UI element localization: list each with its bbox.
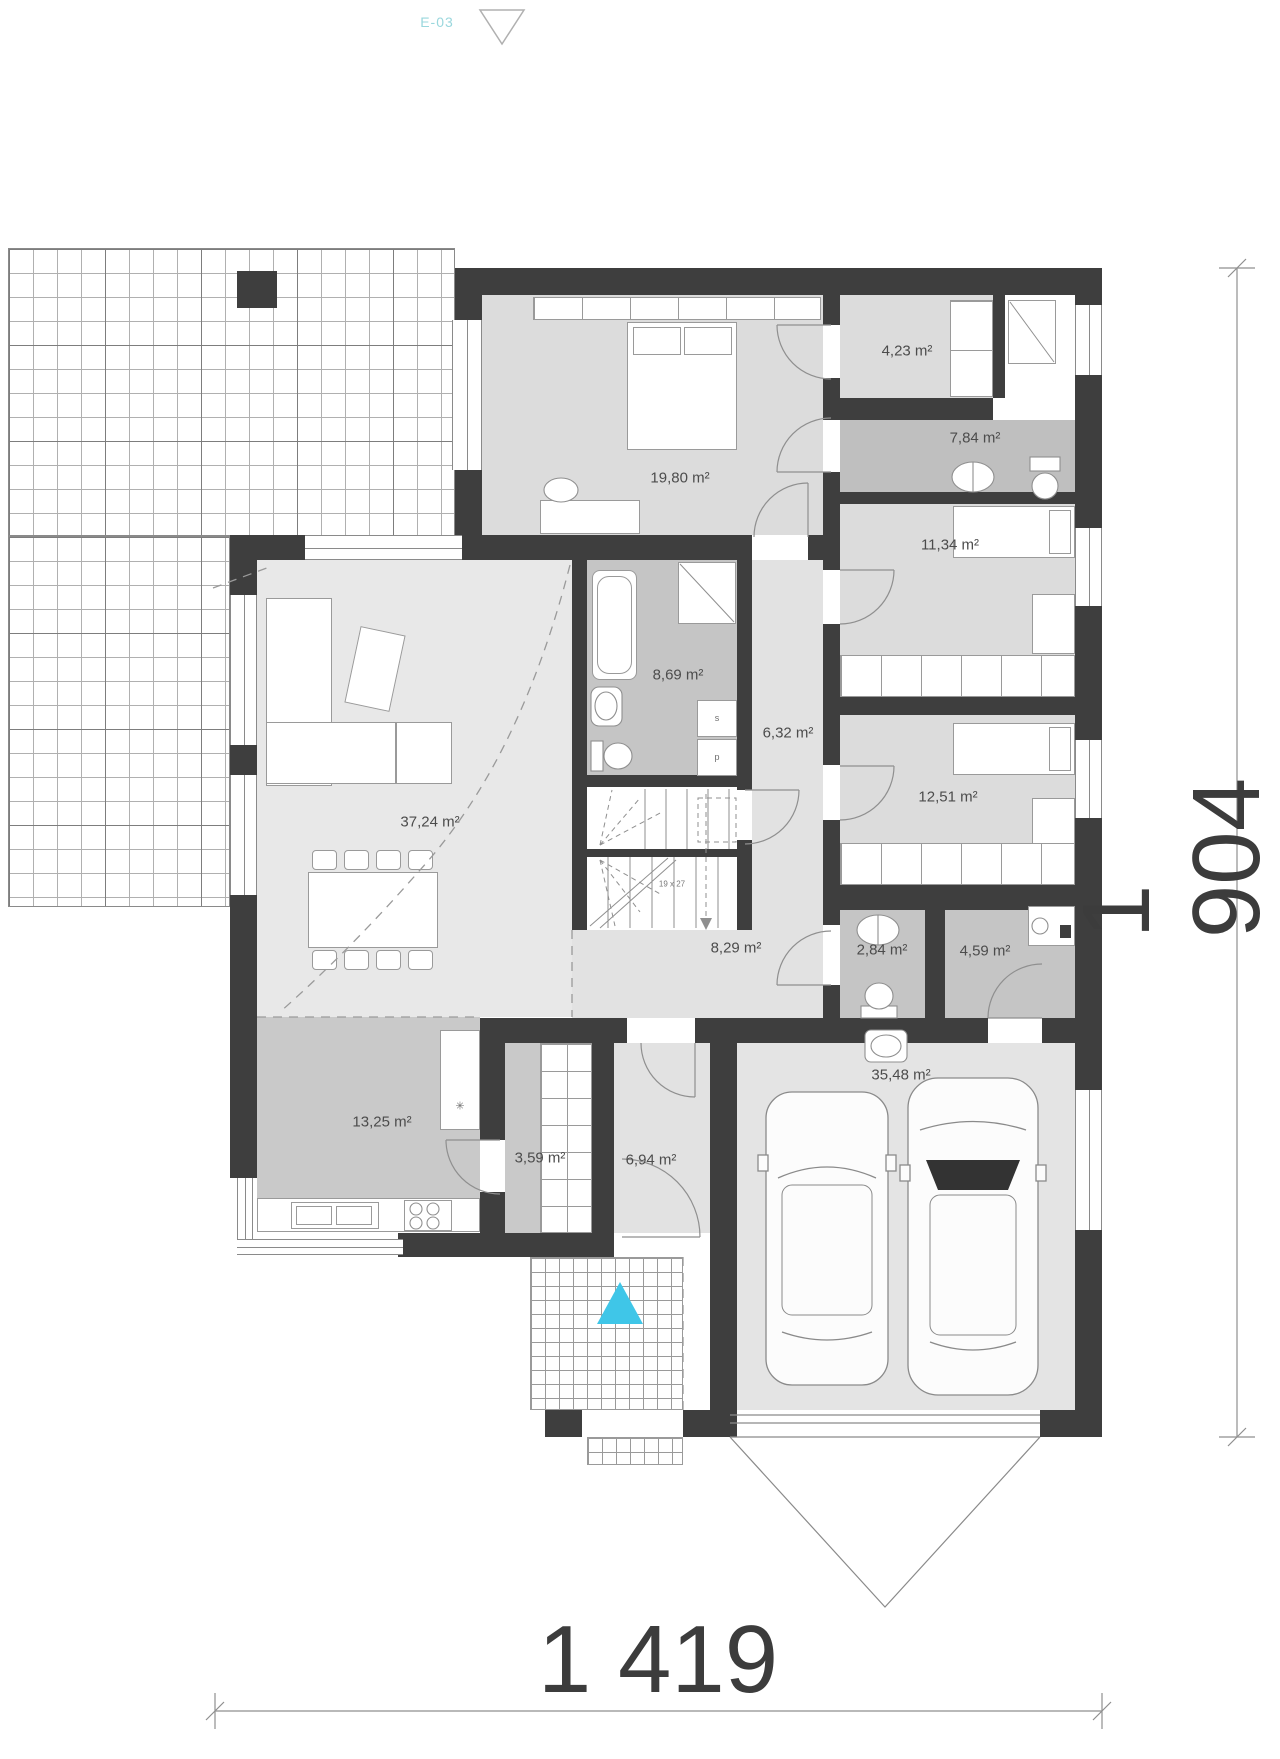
bathtub-inner: [597, 576, 632, 674]
wall-segment: [230, 895, 257, 1178]
window-bath-east: [1075, 305, 1102, 375]
dining-chair: [376, 950, 401, 970]
room-label-garage: 35,48 m²: [871, 1067, 930, 1084]
wardrobe-bedroom-main: [533, 297, 821, 320]
wall-segment: [737, 560, 752, 790]
dining-table: [308, 872, 438, 948]
entry-step: [587, 1437, 683, 1465]
room-label-kitchen: 13,25 m²: [352, 1114, 411, 1131]
fridge: [440, 1030, 480, 1130]
wall-segment: [480, 1018, 627, 1043]
window-kitchen-corner-h: [237, 1239, 403, 1255]
wall-segment: [592, 1043, 614, 1257]
dining-chair: [344, 950, 369, 970]
dimension-right: 1 904: [1062, 778, 1280, 938]
wall-segment: [808, 535, 840, 560]
room-label-bedroom-east-2: 12,51 m²: [918, 789, 977, 806]
wardrobe-bedroom-1: [840, 655, 1075, 697]
wall-segment: [823, 624, 840, 765]
cooktop: [404, 1200, 452, 1231]
floor-stairs: [587, 787, 737, 930]
pillow: [1049, 727, 1071, 771]
room-label-bath-central: 8,69 m²: [653, 667, 704, 684]
room-label-bedroom-main: 19,80 m²: [650, 470, 709, 487]
room-label-pantry: 3,59 m²: [515, 1150, 566, 1167]
room-label-wc: 2,84 m²: [857, 942, 908, 959]
wall-segment: [710, 1043, 737, 1437]
vanity-bedroom: [540, 500, 640, 534]
floor-plan: E-03: [0, 0, 1280, 1759]
dining-chair: [408, 850, 433, 870]
wall-stair-landing: [585, 849, 752, 857]
room-label-bath-ensuite: 7,84 m²: [950, 430, 1001, 447]
sofa-seat: [266, 722, 396, 784]
dryer-label: s: [715, 713, 720, 723]
terrace-column: [237, 271, 277, 308]
wall-segment: [823, 985, 840, 1018]
room-label-closet: 4,23 m²: [882, 343, 933, 360]
room-label-hall: 8,29 m²: [711, 940, 762, 957]
pillow: [1049, 510, 1071, 554]
shower-ensuite: [1008, 300, 1056, 364]
floor-entry: [614, 1043, 710, 1233]
sheet-marker-label: E-03: [420, 14, 454, 30]
window-living-west-2: [230, 775, 257, 895]
dining-chair: [376, 850, 401, 870]
dining-chair: [312, 950, 337, 970]
wardrobe-bedroom-2: [840, 843, 1075, 885]
shower-central: [678, 562, 736, 624]
wall-segment: [455, 295, 482, 320]
wall-segment: [695, 1018, 988, 1043]
wall-segment: [925, 910, 945, 1018]
desk-1: [1032, 594, 1075, 654]
dining-chair: [408, 950, 433, 970]
wall-segment: [398, 1233, 592, 1257]
floor-pantry: [505, 1043, 540, 1233]
window-bedroom1-east: [1075, 528, 1102, 606]
room-label-laundry: 6,32 m²: [763, 725, 814, 742]
wall-segment: [823, 560, 840, 570]
floor-garage: [737, 1043, 1075, 1410]
wall-segment: [230, 535, 305, 560]
wall-segment: [1040, 1410, 1102, 1437]
wall-segment: [840, 492, 1075, 504]
room-label-entry: 6,94 m²: [626, 1152, 677, 1169]
wall-segment: [572, 560, 587, 930]
wall-segment: [823, 295, 840, 325]
fridge-label: ✳: [455, 1100, 464, 1113]
wall-segment: [460, 535, 752, 560]
pillow: [633, 327, 681, 355]
pantry-shelving: [540, 1043, 592, 1233]
wall-segment: [993, 295, 1005, 398]
window-garage-east: [1075, 1090, 1102, 1230]
dimension-bottom: 1 419: [538, 1605, 778, 1715]
wall-segment: [823, 378, 840, 420]
kitchen-sink-basin: [336, 1206, 372, 1225]
pillow: [684, 327, 732, 355]
wall-top: [455, 268, 1102, 295]
room-label-living: 37,24 m²: [400, 814, 459, 831]
terrace-paving-side: [8, 536, 230, 907]
terrace-paving: [8, 248, 455, 536]
wall-segment: [840, 398, 993, 420]
floor-wc: [840, 910, 925, 1018]
sofa-chaise: [396, 722, 452, 784]
wall-segment: [823, 472, 840, 535]
room-label-utility: 4,59 m²: [960, 943, 1011, 960]
window-living-terrace: [305, 535, 462, 560]
garage-door: [730, 1415, 1040, 1607]
entry-porch: [530, 1257, 683, 1410]
kitchen-sink-basin: [296, 1206, 332, 1225]
wall-segment: [480, 1043, 505, 1140]
dining-chair: [344, 850, 369, 870]
wall-segment: [823, 697, 1075, 715]
floor-hall: [572, 930, 823, 1018]
dining-chair: [312, 850, 337, 870]
window-living-west-1: [230, 595, 257, 745]
entry-threshold: [614, 1233, 710, 1257]
stair-dimension-note: 19 x 27: [659, 880, 685, 889]
closet-shelves: [950, 300, 993, 397]
wall-segment: [572, 775, 752, 787]
washer-label: p: [714, 752, 719, 762]
window-kitchen-corner-v: [237, 1178, 253, 1241]
wall-segment: [683, 1410, 730, 1437]
wall-segment: [230, 560, 257, 595]
window-terrace-door: [452, 320, 482, 470]
wall-segment: [1042, 1018, 1102, 1043]
room-label-bedroom-east-1: 11,34 m²: [921, 537, 979, 554]
wall-segment: [230, 745, 257, 775]
